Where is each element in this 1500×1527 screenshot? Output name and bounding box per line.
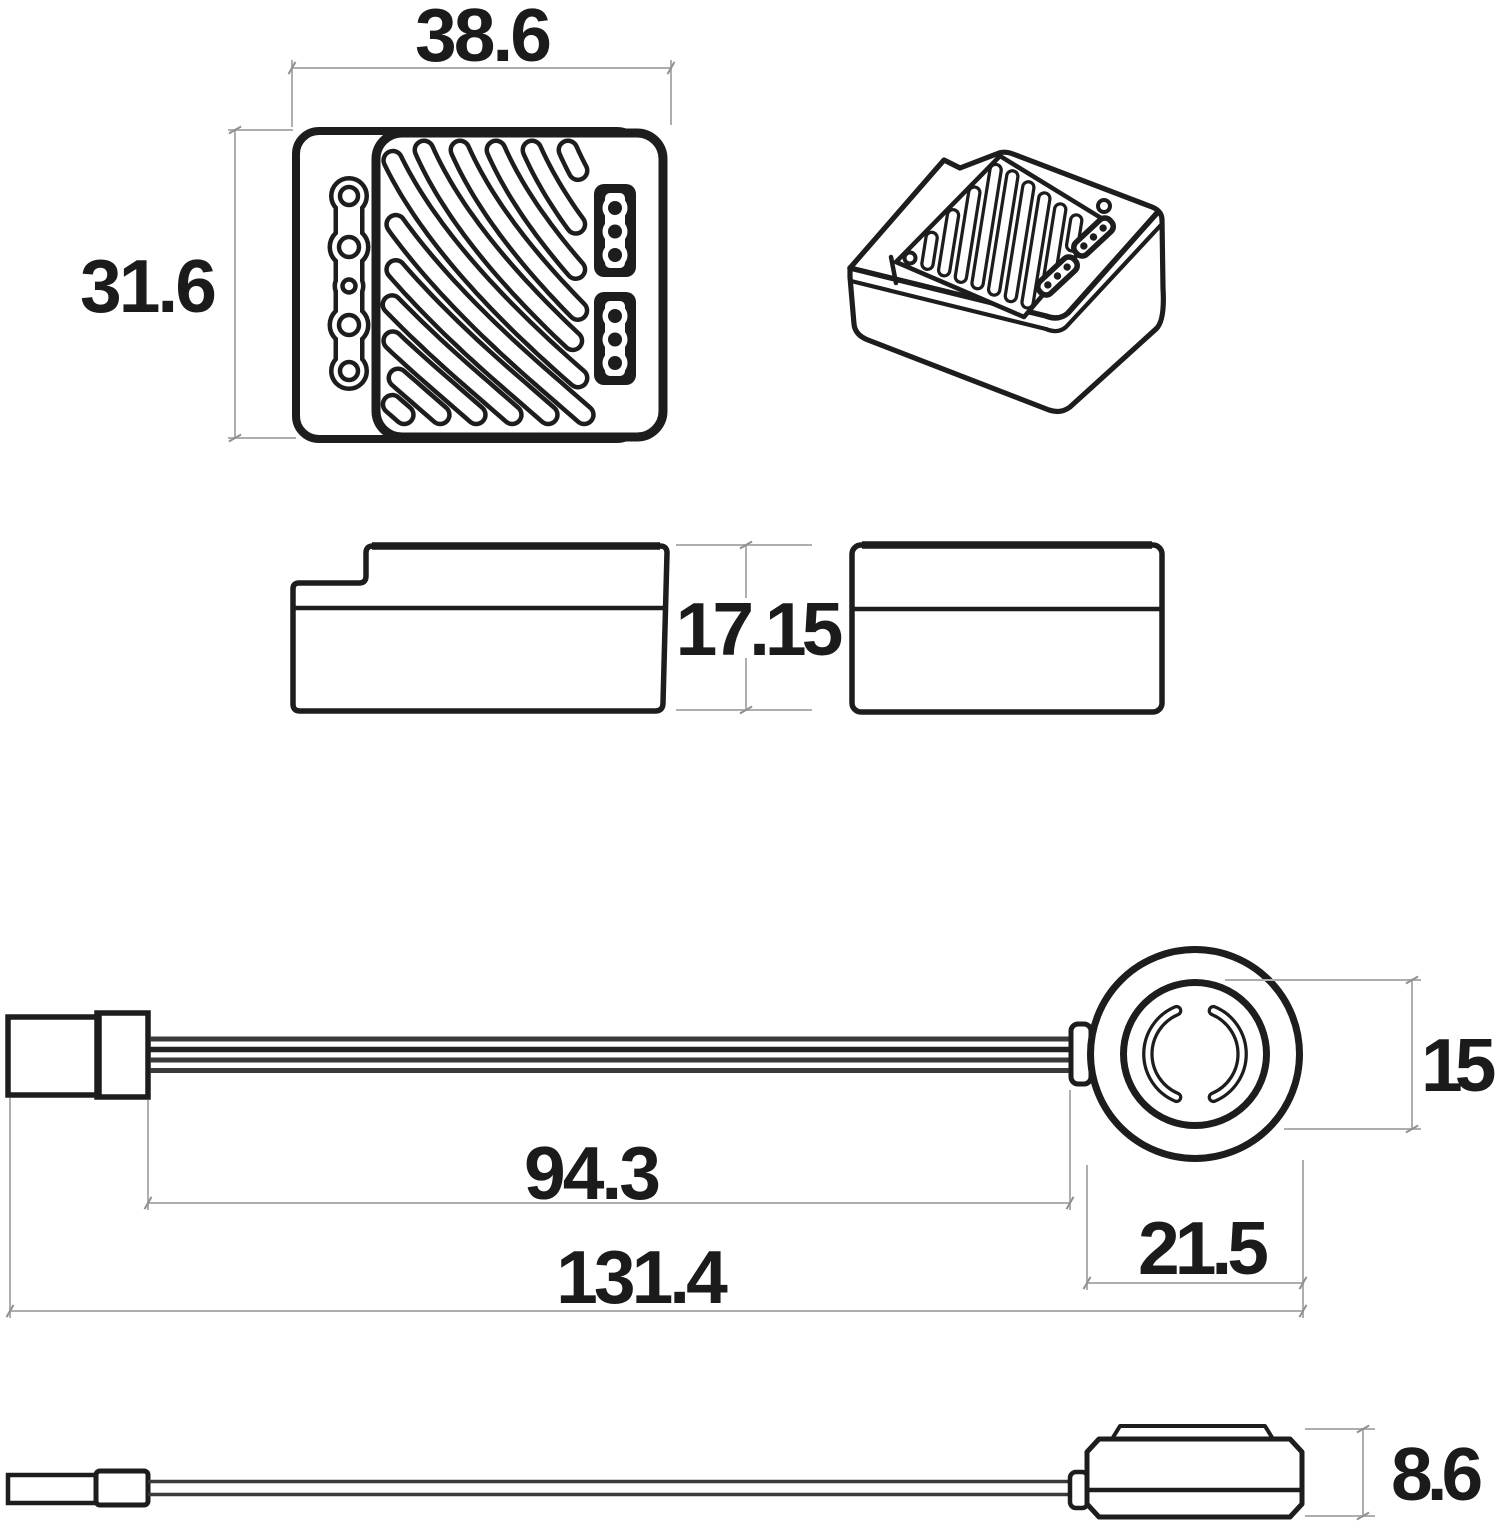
svg-text:131.4: 131.4 <box>556 1235 728 1319</box>
svg-text:15: 15 <box>1421 1023 1495 1107</box>
svg-text:94.3: 94.3 <box>524 1131 658 1215</box>
svg-text:21.5: 21.5 <box>1138 1206 1267 1290</box>
svg-text:31.6: 31.6 <box>80 244 214 328</box>
svg-text:17.15: 17.15 <box>676 587 842 671</box>
svg-text:38.6: 38.6 <box>415 0 549 77</box>
svg-text:8.6: 8.6 <box>1391 1432 1481 1516</box>
